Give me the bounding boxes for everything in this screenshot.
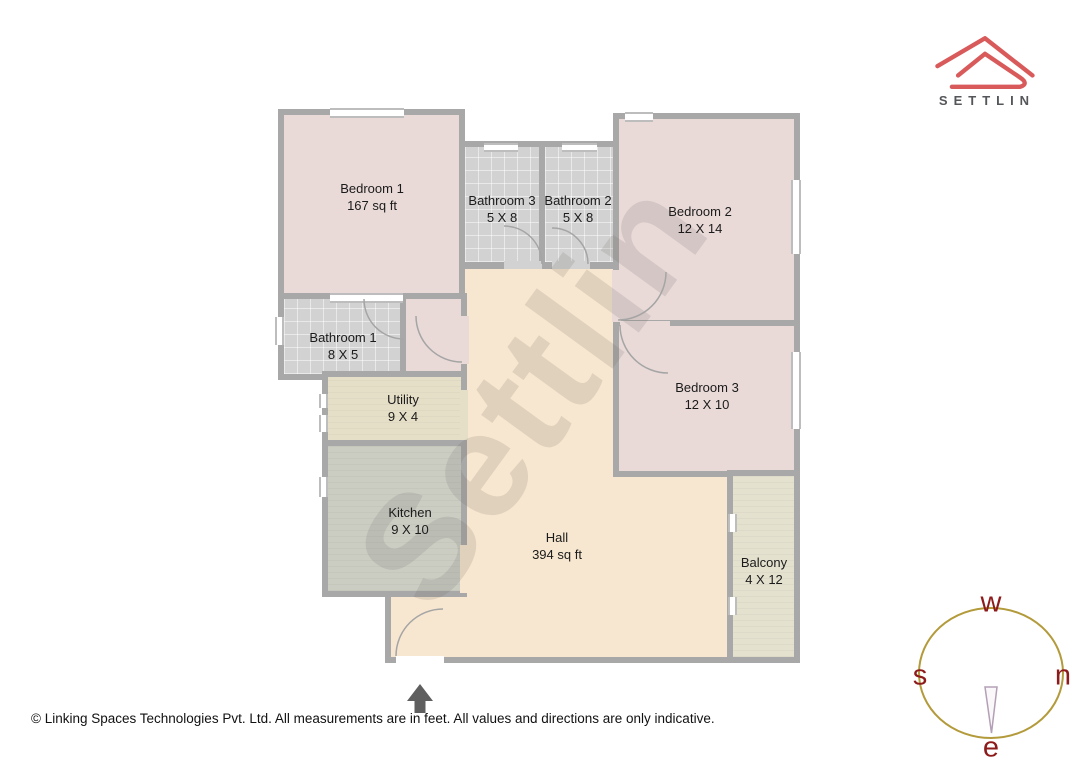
window [728, 597, 737, 615]
brand-logo-icon [930, 30, 1042, 92]
door-opening [504, 261, 542, 269]
label-hall: Hall394 sq ft [532, 529, 582, 563]
window [562, 143, 597, 152]
window [330, 108, 404, 118]
compass-letter-west: w [981, 589, 1002, 618]
window [625, 112, 653, 122]
door-opening [620, 321, 670, 329]
window [791, 180, 801, 254]
label-bedroom-3: Bedroom 312 X 10 [675, 379, 739, 413]
room-passage [400, 293, 467, 382]
label-bathroom-2: Bathroom 25 X 8 [544, 192, 611, 226]
window [319, 394, 328, 408]
window [275, 317, 284, 345]
window [330, 293, 403, 303]
brand-name: SETTLIN [928, 93, 1040, 108]
label-bedroom-2: Bedroom 212 X 14 [668, 203, 732, 237]
label-kitchen: Kitchen9 X 10 [388, 504, 431, 538]
window [791, 352, 801, 429]
compass-letter-east: e [983, 734, 999, 763]
window [728, 514, 737, 532]
window [319, 477, 328, 497]
disclaimer-text: © Linking Spaces Technologies Pvt. Ltd. … [31, 711, 715, 726]
entry-door-opening [396, 656, 444, 664]
window [319, 415, 328, 432]
compass-needle [985, 687, 997, 733]
label-bathroom-1: Bathroom 18 X 5 [309, 329, 376, 363]
label-bedroom-1: Bedroom 1167 sq ft [340, 180, 404, 214]
north-arrow-icon [407, 684, 433, 713]
door-opening [460, 545, 468, 593]
compass-letter-north: n [1055, 662, 1071, 691]
label-bathroom-3: Bathroom 35 X 8 [468, 192, 535, 226]
door-opening [460, 390, 468, 440]
compass-icon [919, 608, 1063, 738]
door-opening [461, 316, 469, 364]
door-opening [612, 270, 621, 322]
label-utility: Utility9 X 4 [387, 391, 419, 425]
door-opening [552, 261, 590, 269]
window [484, 143, 518, 152]
label-balcony: Balcony4 X 12 [741, 554, 787, 588]
compass-letter-south: s [913, 662, 928, 691]
